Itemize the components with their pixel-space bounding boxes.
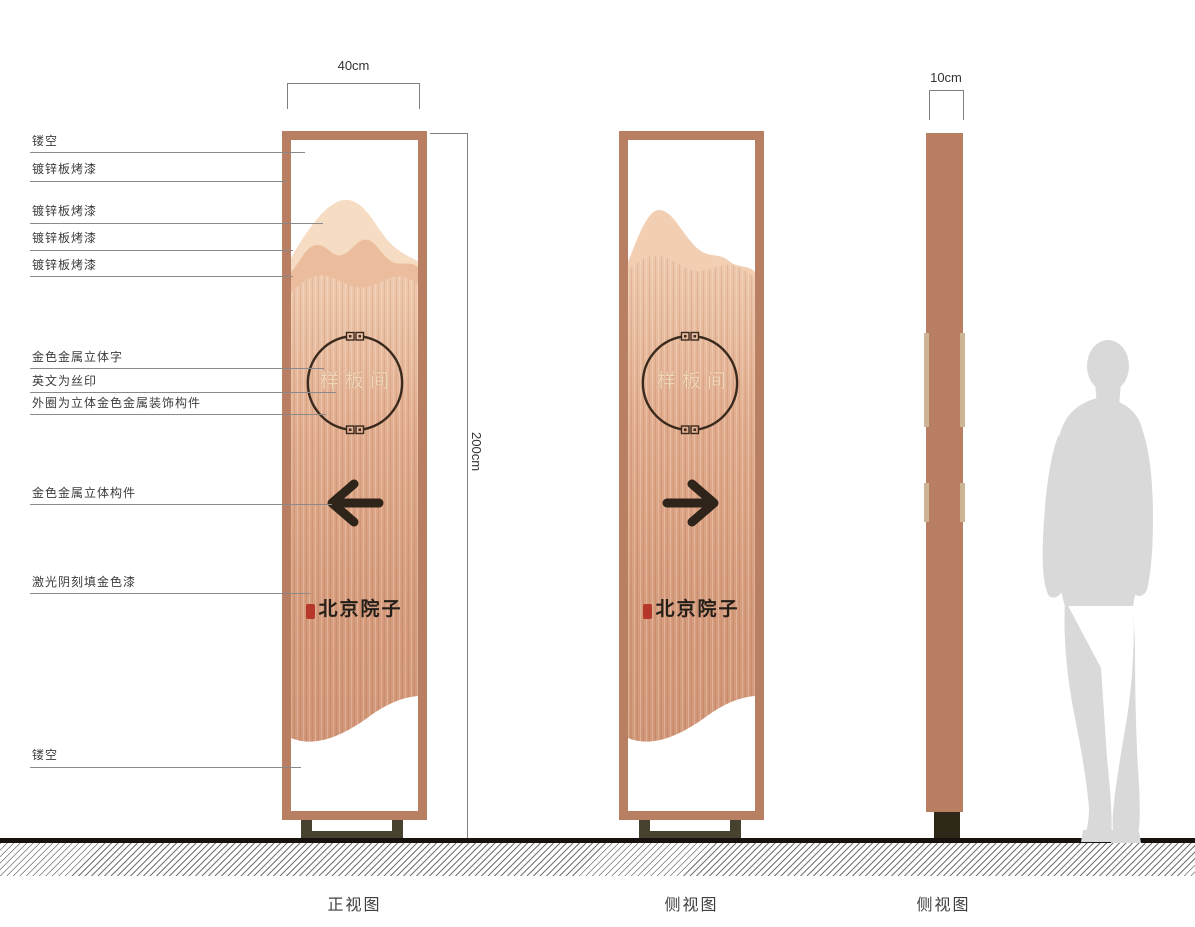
front-view-pylon: 样板间 北京院子 — [282, 131, 427, 820]
callout-label: 镀锌板烤漆 — [32, 162, 97, 176]
edge-strip — [924, 333, 929, 427]
height-dimension-line — [467, 133, 468, 841]
view-label-side2: 侧视图 — [896, 891, 991, 915]
emblem-text: 样板间 — [291, 371, 418, 393]
edge-strip — [960, 333, 965, 427]
callout-label: 金色金属立体构件 — [32, 486, 136, 500]
profile-base-block — [934, 812, 960, 841]
width-dimension-front: 40cm — [287, 58, 420, 73]
brand-calligraphy: 北京院子 — [628, 596, 755, 621]
height-dimension-label: 200cm — [469, 432, 484, 471]
callout-leader-line — [30, 414, 326, 415]
emblem-text: 样板间 — [628, 371, 755, 393]
callout-leader-line — [30, 392, 336, 393]
callout-leader-line — [30, 152, 305, 153]
callout-label: 镀锌板烤漆 — [32, 231, 97, 245]
brand-text: 北京院子 — [318, 599, 402, 621]
callout-label: 外圈为立体金色金属装饰构件 — [32, 396, 201, 410]
callout-label: 镂空 — [32, 134, 58, 148]
person-silhouette — [1035, 338, 1172, 846]
view-label-front: 正视图 — [282, 891, 427, 915]
height-dimension-tick — [430, 133, 467, 134]
callout-label: 激光阴刻填金色漆 — [32, 575, 136, 589]
brand-calligraphy: 北京院子 — [291, 596, 418, 621]
callout-leader-line — [30, 368, 324, 369]
copper-panel-brush-texture — [291, 275, 418, 741]
callout-leader-line — [30, 223, 323, 224]
callout-leader-line — [30, 181, 286, 182]
callout-leader-line — [30, 250, 293, 251]
callout-label: 镀锌板烤漆 — [32, 204, 97, 218]
side-view-pylon: 样板间 北京院子 — [619, 131, 764, 820]
side-base-bracket — [639, 820, 741, 839]
callout-label: 镂空 — [32, 748, 58, 762]
brand-text: 北京院子 — [655, 599, 739, 621]
ground-hatch — [0, 843, 1195, 876]
front-base-bracket — [301, 820, 403, 839]
view-label-side1: 侧视图 — [619, 891, 764, 915]
width-dimension-side: 10cm — [916, 70, 976, 85]
side-panel-graphic — [628, 140, 755, 811]
callout-label: 镀锌板烤漆 — [32, 258, 97, 272]
width-dimension-bracket-side — [929, 90, 964, 120]
profile-view-pylon — [926, 133, 963, 812]
edge-strip — [960, 483, 965, 522]
callout-leader-line — [30, 504, 332, 505]
callout-leader-line — [30, 276, 293, 277]
seal-stamp-icon — [643, 604, 652, 619]
callout-label: 英文为丝印 — [32, 374, 97, 388]
edge-strip — [924, 483, 929, 522]
callout-leader-line — [30, 593, 310, 594]
callout-leader-line — [30, 767, 301, 768]
design-sheet: 镂空 镀锌板烤漆 镀锌板烤漆 镀锌板烤漆 镀锌板烤漆 金色金属立体字 英文为丝印… — [0, 0, 1195, 927]
width-dimension-bracket-front — [287, 83, 420, 109]
front-panel-graphic — [291, 140, 418, 811]
seal-stamp-icon — [306, 604, 315, 619]
callout-label: 金色金属立体字 — [32, 350, 123, 364]
